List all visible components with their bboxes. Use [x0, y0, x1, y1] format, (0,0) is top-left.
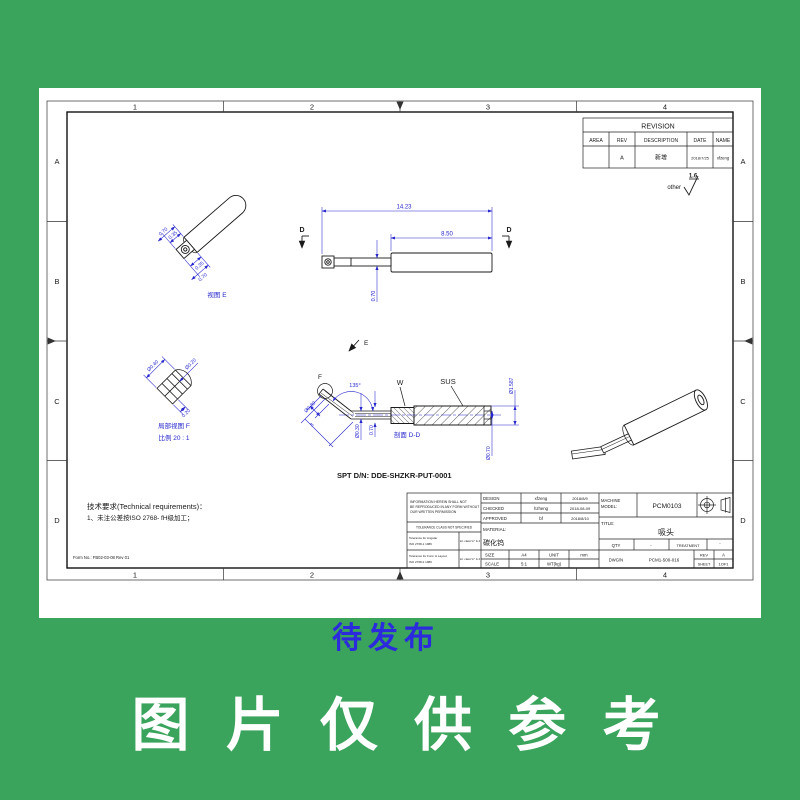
- spt-note: SPT D/N: DDE-SHZKR-PUT-0001: [337, 471, 452, 480]
- title-value: 吸头: [658, 527, 674, 537]
- zone-left-c: C: [54, 397, 60, 406]
- section-letter-right: D: [506, 227, 511, 234]
- zone-left-a: A: [54, 157, 59, 166]
- tech-req-title: 技术要求(Technical requirements)：: [87, 501, 207, 511]
- revision-header-name: NAME: [716, 138, 731, 144]
- zone-bottom-4: 4: [663, 571, 667, 580]
- zone-top-4: 4: [663, 103, 667, 112]
- zone-left-b: B: [54, 277, 59, 286]
- approved-label: APPROVED: [483, 516, 507, 521]
- disclaimer-line3: OUR WRITTEN PERMISSION: [410, 510, 457, 514]
- view-e: 0.35 0.70 0.35 0.70 视图 E: [154, 176, 267, 299]
- main-dim-overall: 14.23: [396, 205, 412, 211]
- machine-value: PCM0103: [653, 503, 682, 510]
- dd-label-w: W: [397, 380, 404, 387]
- treatment-label: TREATMENT: [677, 544, 701, 548]
- roughness-prefix: other: [667, 185, 681, 191]
- form-no: Form No.: FB02-03-08 Rev 01: [73, 555, 130, 560]
- zone-bottom-2: 2: [310, 571, 314, 580]
- drawing-sheet: 1 2 3 4 1 2 3 4 A B C D A B C D REVISION…: [39, 88, 761, 618]
- approved-name: bf: [539, 516, 543, 521]
- watermark-text: 图 片 仅 供 参 考: [132, 678, 669, 762]
- view-e-dim-c: 0.35: [194, 260, 205, 271]
- dd-label-f: F: [318, 374, 322, 381]
- revision-row-description: 新增: [655, 154, 667, 162]
- revision-table: REVISION AREA REV DESCRIPTION DATE NAME …: [583, 118, 733, 168]
- tolerance1-line2: ISO 2768-1 1989: [409, 542, 432, 546]
- view-e-label: 视图 E: [207, 290, 227, 299]
- treatment-value: -: [719, 541, 721, 546]
- zone-left-d: D: [54, 516, 60, 525]
- unit-label: UNIT: [549, 553, 559, 558]
- zone-right-a: A: [740, 157, 745, 166]
- tolerance1-class: tol. class"m" & 4: [460, 539, 481, 543]
- sheet-label: SHEET: [698, 563, 711, 567]
- qty-value: -: [650, 543, 652, 548]
- tolerance2-line1: Tolerance for Form & Layout: [409, 554, 447, 558]
- revision-header-area: AREA: [589, 138, 603, 144]
- detail-f-label: 局部视图 F: [158, 421, 190, 430]
- material-value: 碳化钨: [483, 538, 504, 547]
- zone-right-d: D: [740, 516, 746, 525]
- design-name: xfzeng: [535, 496, 548, 501]
- dd-dim-tip-dia: Ø0.30: [303, 400, 317, 414]
- approved-date: 2018/8/10: [571, 516, 590, 521]
- zone-right-c: C: [740, 397, 746, 406]
- size-value: A4: [521, 553, 527, 558]
- scale-value: 5:1: [521, 562, 528, 567]
- checked-name: hzheng: [534, 506, 549, 511]
- main-dim-height: 0.70: [371, 291, 377, 302]
- revision-header-date: DATE: [694, 138, 708, 144]
- zone-bottom-1: 1: [133, 571, 137, 580]
- dd-dim-body-od: Ø1.587: [509, 377, 515, 394]
- center-mark-right: [745, 338, 752, 344]
- view-e-direction-arrow: E: [349, 340, 369, 351]
- disclaimer-line1: INFORMATION HEREIN SHALL NOT: [410, 500, 467, 504]
- revision-header-rev: REV: [617, 138, 628, 144]
- revision-title: REVISION: [641, 124, 674, 131]
- dd-label-e: E: [364, 340, 369, 347]
- dd-dim-shaft-od: 0.70: [369, 425, 375, 435]
- zone-right-b: B: [740, 277, 745, 286]
- machine-label1: MACHINE: [601, 498, 621, 503]
- zone-top-1: 1: [133, 103, 137, 112]
- rev-value: A: [722, 553, 725, 558]
- roughness-value: 1.6: [689, 174, 698, 180]
- design-date: 2018/8/9: [572, 496, 588, 501]
- main-dim-body: 8.50: [441, 232, 453, 238]
- title-block: INFORMATION HEREIN SHALL NOT BE REPRODUC…: [407, 493, 733, 568]
- technical-requirements: 技术要求(Technical requirements)： 1、未注公差按ISO…: [87, 501, 207, 522]
- drawing-svg: 1 2 3 4 1 2 3 4 A B C D A B C D REVISION…: [39, 88, 761, 618]
- dd-dim-tip-len: 3: [309, 422, 315, 428]
- qty-label: QTY: [612, 543, 621, 548]
- zone-bottom-3: 3: [486, 571, 490, 580]
- design-label: DESIGN: [483, 496, 499, 501]
- isometric-view: [571, 388, 710, 459]
- tolerance2-line2: ISO 2768-2 1989: [409, 560, 432, 564]
- watermark-banner: 图 片 仅 供 参 考: [0, 618, 800, 800]
- main-view: 14.23 8.50 0.70 D D: [299, 205, 511, 303]
- center-mark-top: [397, 102, 403, 109]
- dwg-label: DWG/N: [609, 558, 623, 563]
- dd-angle: 135°: [349, 383, 360, 389]
- tolerance1-line1: Tolerance for Angular: [409, 536, 437, 540]
- machine-label2: MODEL:: [601, 504, 617, 509]
- unit-value: mm: [580, 553, 588, 558]
- tolerance2-class: tol. class"m" & 4: [460, 557, 481, 561]
- revision-header-description: DESCRIPTION: [644, 138, 679, 144]
- dd-label-sus: SUS: [440, 377, 455, 386]
- detail-f-dim3: Ø0.20: [184, 357, 198, 371]
- rev-label: REV: [700, 553, 709, 558]
- projection-symbol: [698, 496, 730, 514]
- zone-top-3: 3: [486, 103, 490, 112]
- sheet-value: 1OF1: [718, 562, 729, 567]
- revision-row-date: 2018/7/25: [691, 156, 710, 161]
- material-label: MATERIAL:: [483, 527, 506, 532]
- detail-f-scale: 比例 20 : 1: [158, 433, 189, 442]
- wt-label: WT(kg): [547, 562, 562, 567]
- dd-dim-shaft-dia: Ø0.30: [355, 424, 361, 438]
- center-mark-left: [48, 338, 55, 344]
- dd-dim-bore: Ø0.70: [486, 446, 492, 460]
- revision-row-name: xfzeng: [717, 156, 730, 161]
- dwg-value: PCM1-500-016: [649, 558, 680, 563]
- section-marks: D D: [299, 227, 511, 248]
- revision-row-rev: A: [620, 156, 624, 162]
- zone-top-2: 2: [310, 103, 314, 112]
- center-mark-bottom: [397, 572, 403, 579]
- scale-label: SCALE: [485, 562, 499, 567]
- checked-date: 2018-08-09: [570, 506, 591, 511]
- section-dd-label: 剖面 D-D: [394, 430, 421, 439]
- title-label: TITLE:: [601, 521, 615, 526]
- roughness-note: other 1.6: [667, 174, 699, 196]
- view-e-dim-d: 0.70: [198, 272, 209, 283]
- disclaimer-line2: BE REPRODUCED IN ANY FORM WITHOUT: [410, 505, 479, 509]
- checked-label: CHECKED: [483, 506, 504, 511]
- size-label: SIZE: [485, 553, 495, 558]
- tolerance-header: TOLERANCE CLASS NOT SPECIFIED: [416, 526, 473, 530]
- section-dd: 135° Ø0.30 0.70 Ø0.30 3 Ø1.587 Ø0.70 W S…: [301, 340, 519, 460]
- detail-f: Ø0.40 0.20 Ø0.20 局部视图 F 比例 20 : 1: [141, 339, 221, 442]
- section-letter-left: D: [299, 227, 304, 234]
- tech-req-item: 1、未注公差按ISO 2768- fH级加工；: [87, 513, 194, 522]
